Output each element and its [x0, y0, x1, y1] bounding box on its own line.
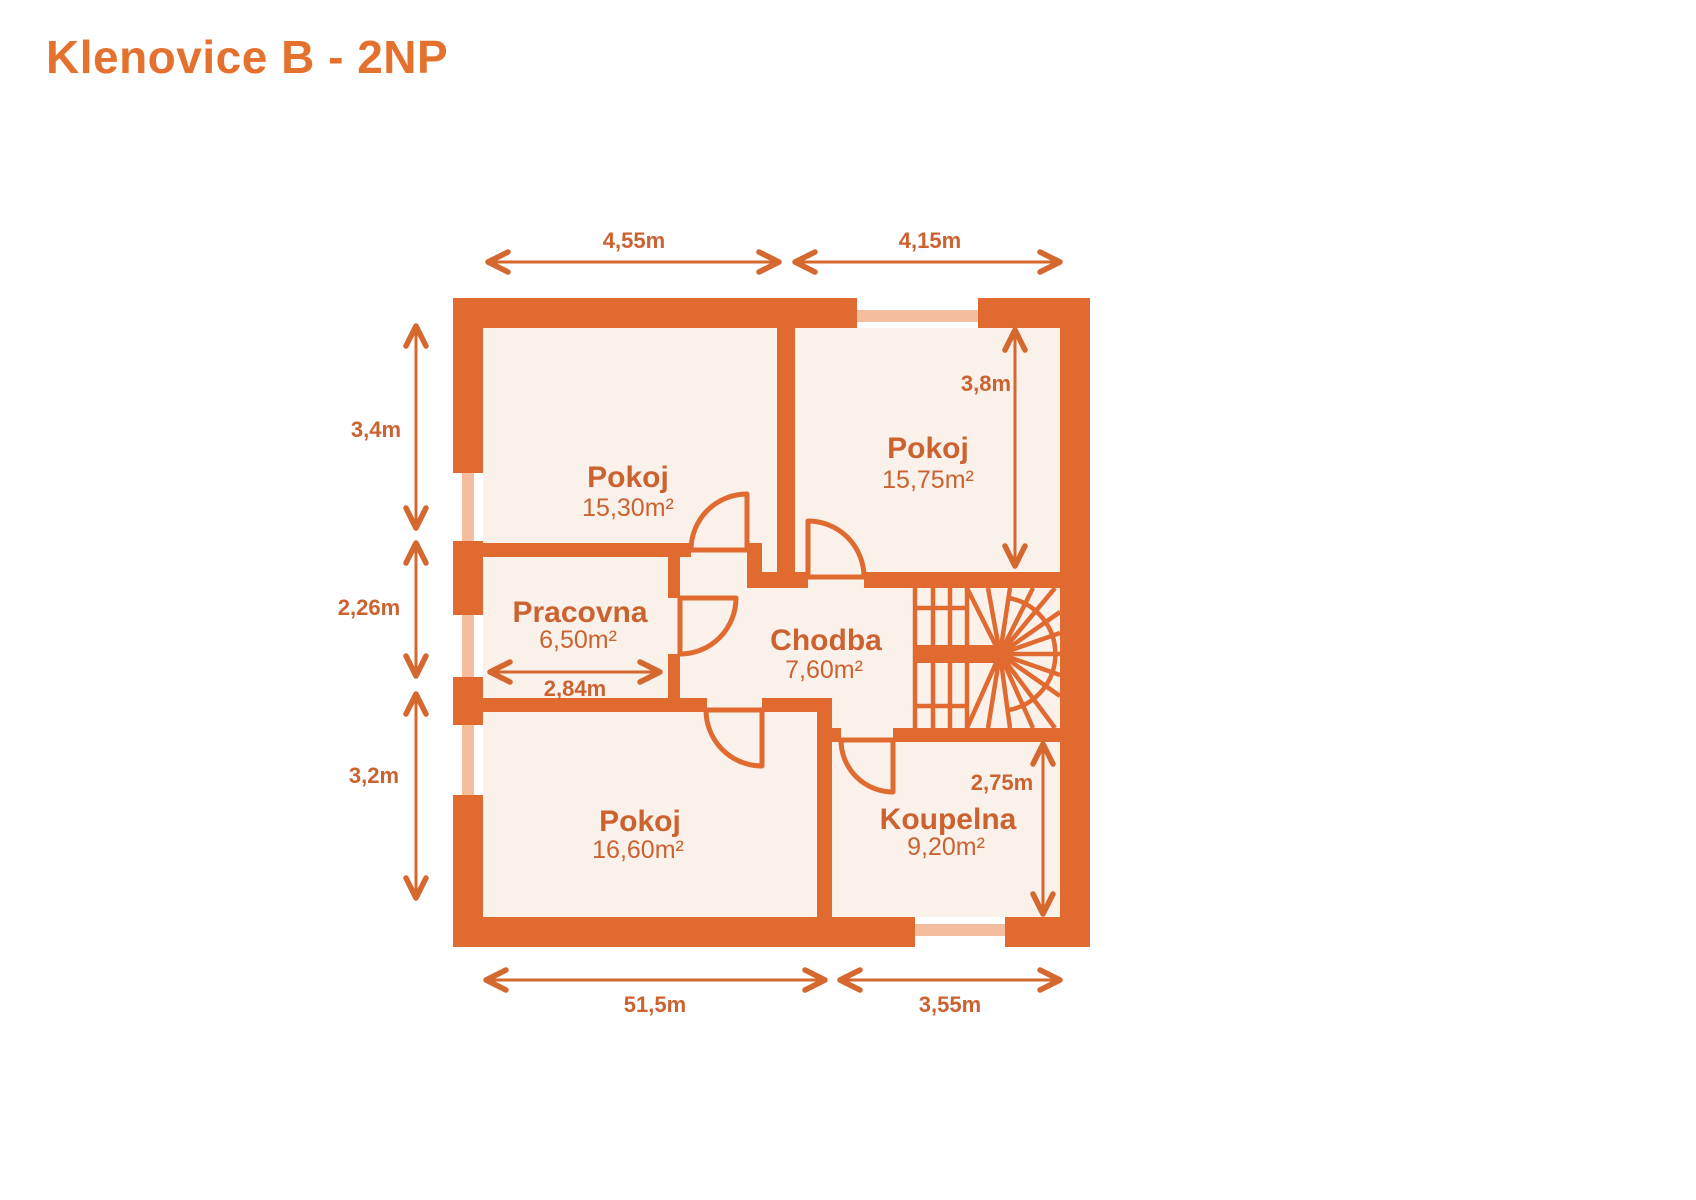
window-left-3 [462, 725, 474, 795]
dimension-label: 3,55m [919, 992, 981, 1017]
room-area: 15,75m² [882, 466, 974, 494]
dimension-label: 4,55m [603, 228, 665, 253]
window-left-2 [462, 615, 474, 677]
room-label-pokoj-1660: Pokoj 16,60m² [592, 805, 684, 864]
window-bottom [915, 924, 1005, 936]
stair-landing-bar [916, 645, 1000, 663]
wall-segment-top [453, 298, 857, 328]
room-name: Pokoj [587, 461, 669, 494]
dimension-top-right: 4,15m [795, 228, 1060, 262]
wall-segment-right [1060, 298, 1090, 947]
wall-segment-bottom [453, 917, 915, 947]
floor-plan-page: Klenovice B - 2NP [0, 0, 1696, 1200]
dimension-label: 3,8m [961, 371, 1011, 396]
floor-plan: 4,55m 4,15m 3,4m 2,26m 3,2m 51,5m [0, 0, 1696, 1200]
wall-top-rooms-divider [777, 328, 795, 588]
room-name: Pokoj [599, 805, 681, 838]
wall-study-right-upper [668, 543, 680, 598]
room-name: Chodba [770, 624, 882, 657]
dimension-left-middle: 2,26m [338, 543, 416, 676]
window-left-1 [462, 473, 474, 541]
wall-segment-left-2 [453, 541, 483, 615]
room-name: Pokoj [887, 432, 969, 465]
dimension-label: 2,84m [544, 676, 606, 701]
dimension-label: 2,75m [971, 770, 1033, 795]
room-label-pokoj-1575: Pokoj 15,75m² [882, 432, 974, 494]
dimension-label: 3,4m [351, 417, 401, 442]
wall-bathroom-west [817, 698, 832, 917]
wall-hall-north-right [864, 572, 1060, 588]
dimension-label: 51,5m [624, 992, 686, 1017]
wall-hall-north-left [760, 572, 808, 588]
dimension-label: 2,26m [338, 595, 400, 620]
room-area: 16,60m² [592, 836, 684, 864]
room-area: 7,60m² [785, 656, 863, 684]
wall-study-top [483, 543, 691, 557]
window-top [857, 310, 978, 322]
wall-bathroom-north [893, 728, 1060, 742]
wall-segment-left-4 [453, 795, 483, 947]
wall-segment-left-1 [453, 298, 483, 473]
room-area: 9,20m² [907, 833, 985, 861]
dimension-bottom-left: 51,5m [486, 980, 825, 1017]
dimension-left-upper: 3,4m [351, 326, 416, 528]
wall-segment-left-3 [453, 677, 483, 725]
dimension-label: 3,2m [349, 763, 399, 788]
dimension-bottom-right: 3,55m [840, 980, 1060, 1017]
room-name: Koupelna [880, 803, 1017, 836]
room-area: 15,30m² [582, 494, 674, 522]
room-area: 6,50m² [539, 626, 617, 654]
room-name: Pracovna [512, 596, 647, 629]
dimension-label: 4,15m [899, 228, 961, 253]
dimension-top-left: 4,55m [488, 228, 779, 262]
room-label-pokoj-1530: Pokoj 15,30m² [582, 461, 674, 522]
wall-segment-bottom-right-block [1005, 917, 1090, 947]
dimension-left-lower: 3,2m [349, 694, 416, 898]
